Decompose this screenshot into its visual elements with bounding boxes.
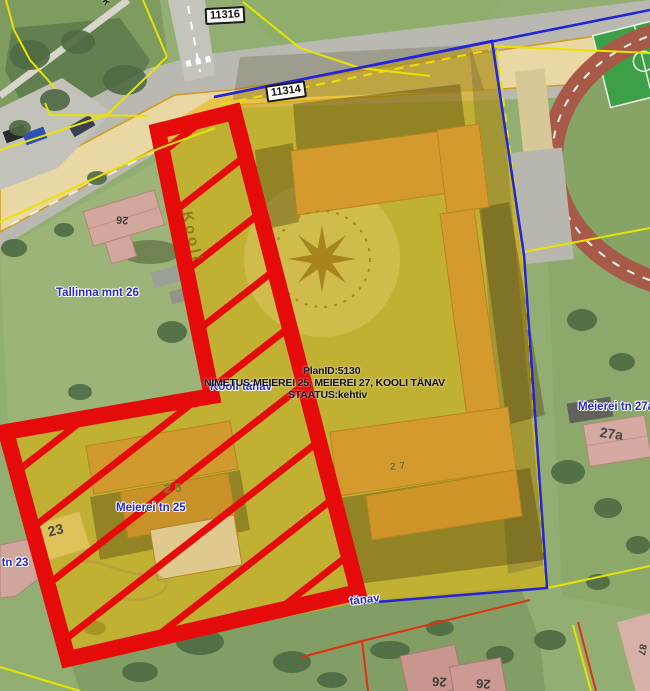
plan-info-status: STAATUS:kehtiv: [288, 389, 367, 401]
plan-info-name: NIMETUS:MEIEREI 25, MEIEREI 27, KOOLI TÄ…: [204, 377, 445, 389]
map-canvas[interactable]: lk 11316 11314 Tallinna mnt 26 Kooli Koo…: [0, 0, 650, 691]
parcel-number-25: 25: [164, 480, 186, 495]
plan-info-id: PlanID:5130: [303, 365, 360, 377]
address-label-kooli-tn-23: li tn 23: [0, 557, 28, 569]
roof-number-26-bottom-left: 26: [432, 674, 447, 690]
aerial-map-graphics: [0, 0, 650, 691]
address-label-tallinna-mnt-26: Tallinna mnt 26: [56, 287, 139, 299]
parcel-number-27: 27: [389, 460, 409, 473]
roof-number-26-tallinna: 26: [116, 213, 129, 226]
address-label-meierei-tn-25: Meierei tn 25: [116, 502, 186, 514]
road-number-badge-11316: 11316: [205, 6, 246, 25]
address-label-meierei-tn-27a: Meierei tn 27a: [578, 401, 650, 413]
roof-number-87-corner: 87: [635, 643, 648, 656]
parcel-number-27a: 27a: [599, 424, 624, 443]
roof-number-26-bottom-right: 26: [476, 676, 491, 691]
